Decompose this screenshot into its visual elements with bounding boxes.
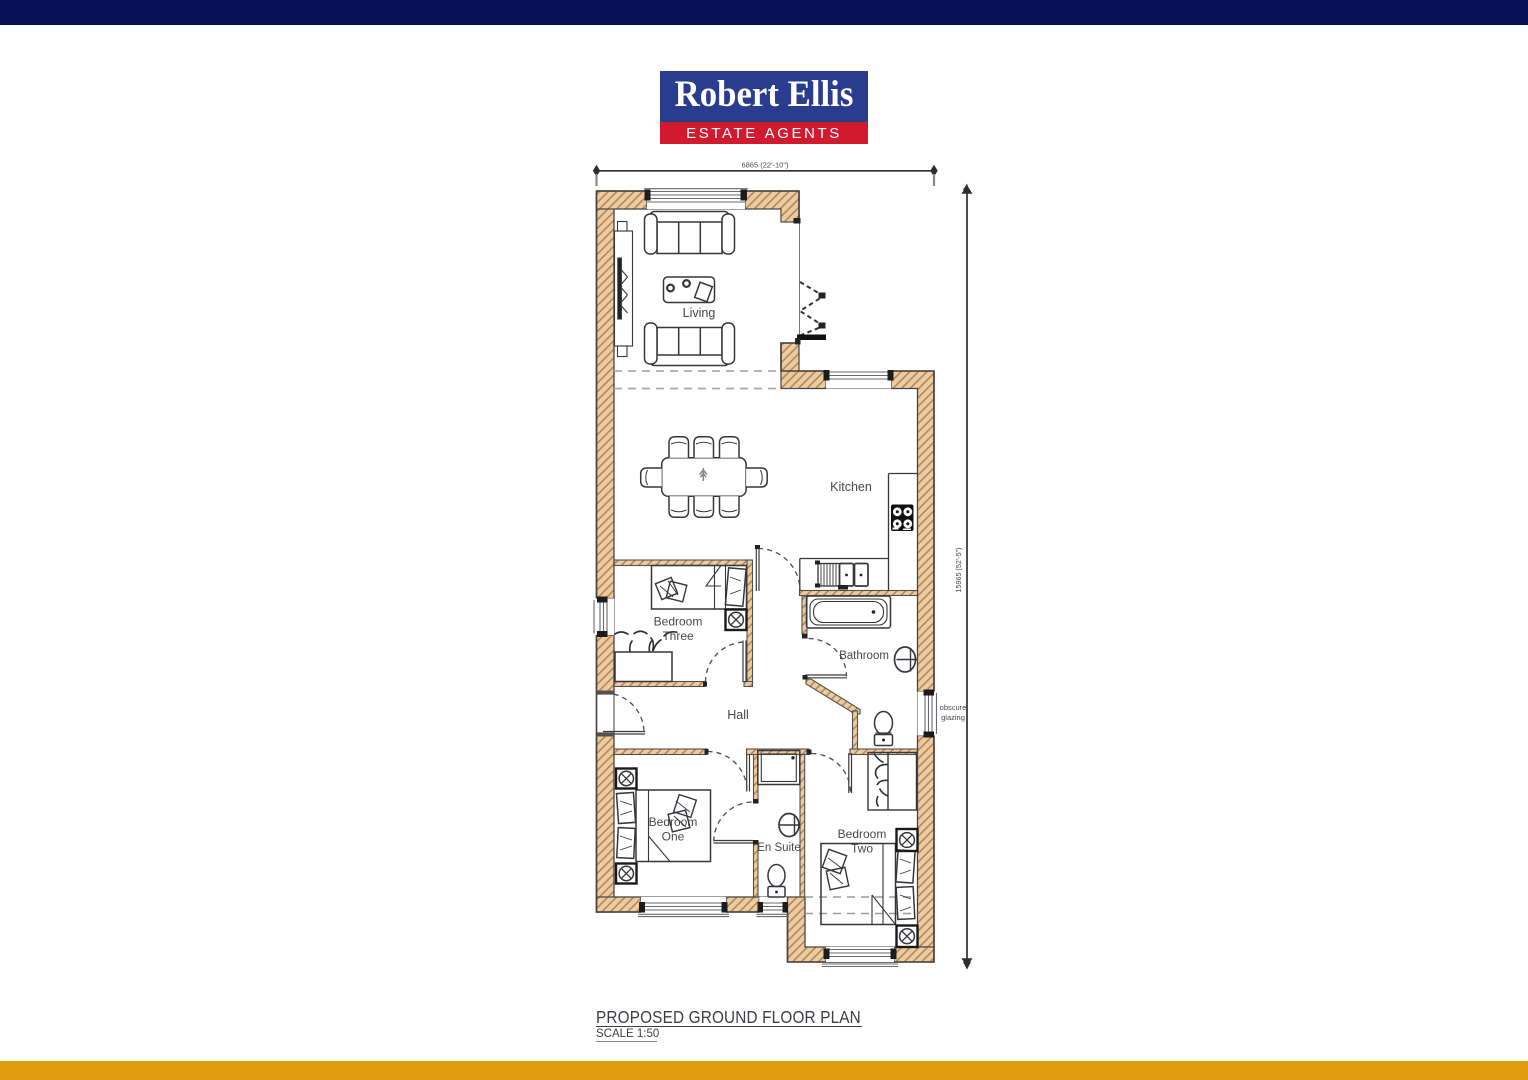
svg-text:glazing: glazing (941, 713, 965, 722)
svg-text:obscure: obscure (940, 703, 967, 712)
svg-text:Bedroom: Bedroom (654, 615, 703, 629)
svg-text:6865 (22'-10"): 6865 (22'-10") (741, 161, 789, 170)
svg-text:Bathroom: Bathroom (839, 650, 889, 662)
svg-text:En Suite: En Suite (757, 842, 800, 854)
svg-text:Hall: Hall (727, 708, 749, 722)
svg-text:Living: Living (683, 306, 716, 320)
svg-text:15965 (52'-5"): 15965 (52'-5") (954, 547, 963, 592)
svg-text:Kitchen: Kitchen (830, 480, 872, 494)
svg-text:Bedroom: Bedroom (838, 827, 887, 841)
svg-text:Three: Three (662, 629, 694, 643)
